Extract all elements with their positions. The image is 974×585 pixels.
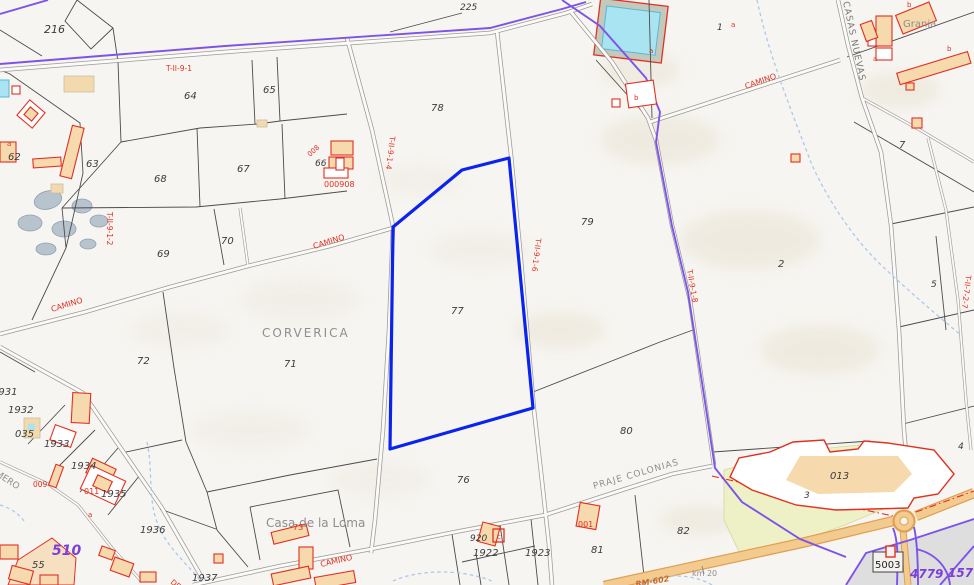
parcel-numbers-label: 78 [431, 103, 444, 114]
cadastral-codes-label: 011 [84, 487, 99, 496]
cadastral-codes-label: 009 [33, 480, 48, 489]
parcel-numbers-label: 5 [931, 280, 937, 290]
parcel-numbers-label: 80 [620, 426, 633, 437]
parcel-numbers-label: 81 [591, 545, 604, 556]
building-letters-label: b [907, 1, 912, 9]
building-letters-label: a [7, 140, 11, 148]
parcel-numbers-label: 5003 [875, 560, 900, 571]
road-numbers-label: 4779 [909, 567, 943, 581]
place-names-label: CORVERICA [262, 326, 350, 340]
parcel-numbers-label: 013 [830, 471, 849, 482]
parcel-numbers-label: 55 [32, 560, 45, 571]
parcel-numbers-label: 76 [457, 475, 470, 486]
place-names-label: km 20 [692, 569, 717, 578]
pond-edge [0, 80, 9, 97]
building-letters-label: a [731, 21, 735, 29]
parcel-numbers-label: 63 [86, 159, 99, 170]
parcel-numbers-label: 67 [237, 164, 250, 175]
parcel-numbers-label: 77 [451, 306, 464, 317]
map-canvas[interactable]: 2162256465666768626369707172767778798081… [0, 0, 974, 585]
parcel-numbers-label: 70 [221, 236, 234, 247]
parcel-numbers-label: 920 [470, 534, 487, 544]
parcel-numbers-label: 3 [804, 491, 810, 501]
parcel-numbers-label: 1934 [71, 461, 96, 472]
building-letters-label: c [497, 533, 501, 541]
parcel-numbers-label: 82 [677, 526, 690, 537]
parcel-numbers-label: 1935 [101, 489, 126, 500]
cadastral-codes-label: T-II-9-1 [165, 64, 192, 73]
parcel-numbers-label: 79 [581, 217, 594, 228]
parcel-numbers-label: 72 [137, 356, 150, 367]
place-names-label: Granja [903, 19, 936, 30]
parcel-numbers-label: 1937 [192, 573, 218, 584]
road-numbers-label: 1577 [948, 566, 974, 580]
parcel-numbers-label: 1922 [473, 548, 498, 559]
parcel-numbers-label: 1 [717, 23, 723, 33]
cadastral-codes-label: 000908 [324, 180, 355, 189]
parcel-numbers-label: 1932 [8, 405, 33, 416]
place-names-label: Casa de la Loma [266, 516, 365, 530]
parcel-numbers-label: 1931 [0, 387, 17, 398]
parcel-numbers-label: 216 [44, 23, 65, 36]
cadastral-codes-label: 001 [578, 520, 593, 529]
cadastral-codes-label: T-II-9-1-2 [105, 211, 114, 246]
parcel-numbers-label: 1933 [44, 439, 69, 450]
parcel-numbers-label: 4 [958, 442, 964, 452]
parcel-numbers-label: 7 [899, 140, 906, 151]
building-letters-label: a [88, 511, 92, 519]
map-viewport[interactable]: 2162256465666768626369707172767778798081… [0, 0, 974, 585]
parcel-numbers-label: 62 [8, 152, 21, 163]
parcel-numbers-label: 69 [157, 249, 170, 260]
cadastral-codes-label: 73 [293, 523, 303, 532]
parcel-numbers-label: 1923 [525, 548, 550, 559]
building-letters-label: b [634, 94, 639, 102]
building-letters-label: a [873, 55, 877, 63]
parcel-numbers-label: 035 [15, 429, 34, 440]
parcel-numbers-label: 225 [460, 3, 477, 13]
parcel-numbers-label: 2 [778, 259, 784, 270]
parcel-numbers-label: 66 [315, 159, 327, 169]
building-letters-label: a [649, 47, 653, 55]
parcel-numbers-label: 68 [154, 174, 167, 185]
building-letters-label: b [947, 45, 952, 53]
road-numbers-label: 510 [52, 543, 81, 559]
parcel-numbers-label: 65 [263, 85, 276, 96]
parcel-numbers-label: 1936 [140, 525, 165, 536]
parcel-numbers-label: 64 [184, 91, 197, 102]
parcel-numbers-label: 71 [284, 359, 297, 370]
